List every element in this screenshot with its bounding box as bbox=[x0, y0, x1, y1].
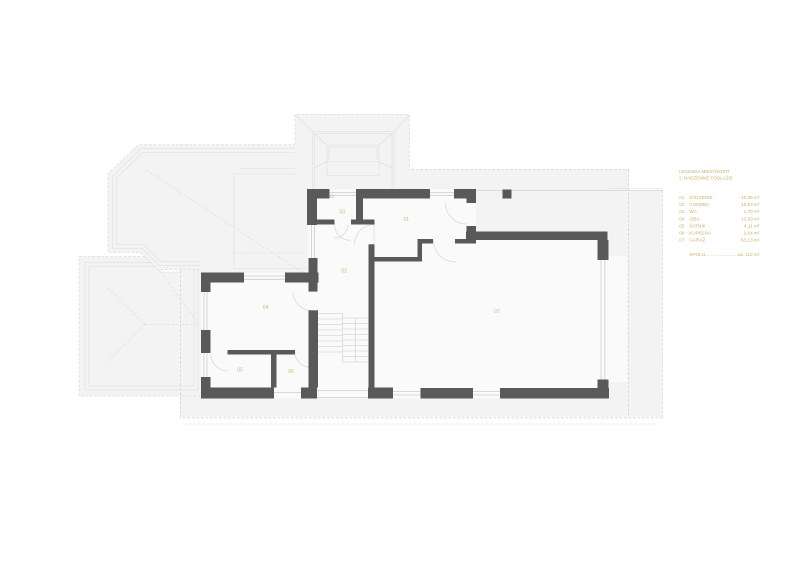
svg-text:ŠATNÍK: ŠATNÍK bbox=[689, 222, 706, 228]
svg-text:07: 07 bbox=[494, 309, 500, 315]
svg-text:63,13 m²: 63,13 m² bbox=[741, 238, 760, 243]
svg-text:1,70 m²: 1,70 m² bbox=[744, 209, 760, 214]
svg-text:07: 07 bbox=[679, 238, 685, 243]
svg-text:CHODBA: CHODBA bbox=[689, 202, 710, 207]
svg-text:ca. 112 m²: ca. 112 m² bbox=[738, 252, 760, 257]
svg-text:4,11 m²: 4,11 m² bbox=[744, 223, 760, 228]
svg-text:04: 04 bbox=[263, 305, 269, 311]
svg-text:13,50 m²: 13,50 m² bbox=[741, 216, 760, 221]
svg-text:05: 05 bbox=[237, 367, 243, 373]
svg-text:01: 01 bbox=[404, 217, 410, 223]
svg-text:GARÁŽ: GARÁŽ bbox=[689, 236, 705, 243]
svg-text:06: 06 bbox=[679, 231, 685, 236]
svg-text:06: 06 bbox=[288, 369, 294, 375]
svg-text:02: 02 bbox=[341, 269, 347, 275]
svg-text:2,64 m²: 2,64 m² bbox=[744, 231, 760, 236]
svg-text:02: 02 bbox=[679, 202, 685, 207]
svg-text:IZBA: IZBA bbox=[689, 216, 700, 221]
svg-text:KÚPEĽŇA: KÚPEĽŇA bbox=[689, 230, 712, 236]
svg-text:04: 04 bbox=[679, 216, 685, 221]
svg-text:03: 03 bbox=[679, 209, 685, 214]
svg-text:05: 05 bbox=[679, 223, 685, 228]
svg-text:WC: WC bbox=[689, 209, 697, 214]
svg-text:ZÁDVERIE: ZÁDVERIE bbox=[689, 194, 712, 200]
svg-text:03: 03 bbox=[340, 210, 346, 216]
svg-text:16,53 m²: 16,53 m² bbox=[741, 202, 760, 207]
svg-text:01: 01 bbox=[679, 195, 685, 200]
svg-text:10,36 m²: 10,36 m² bbox=[741, 195, 760, 200]
svg-text:2. NADZEMNÉ PODLAŽIE: 2. NADZEMNÉ PODLAŽIE bbox=[679, 174, 733, 181]
svg-text:LEGENDA MIESTNOSTÍ: LEGENDA MIESTNOSTÍ bbox=[679, 168, 730, 174]
